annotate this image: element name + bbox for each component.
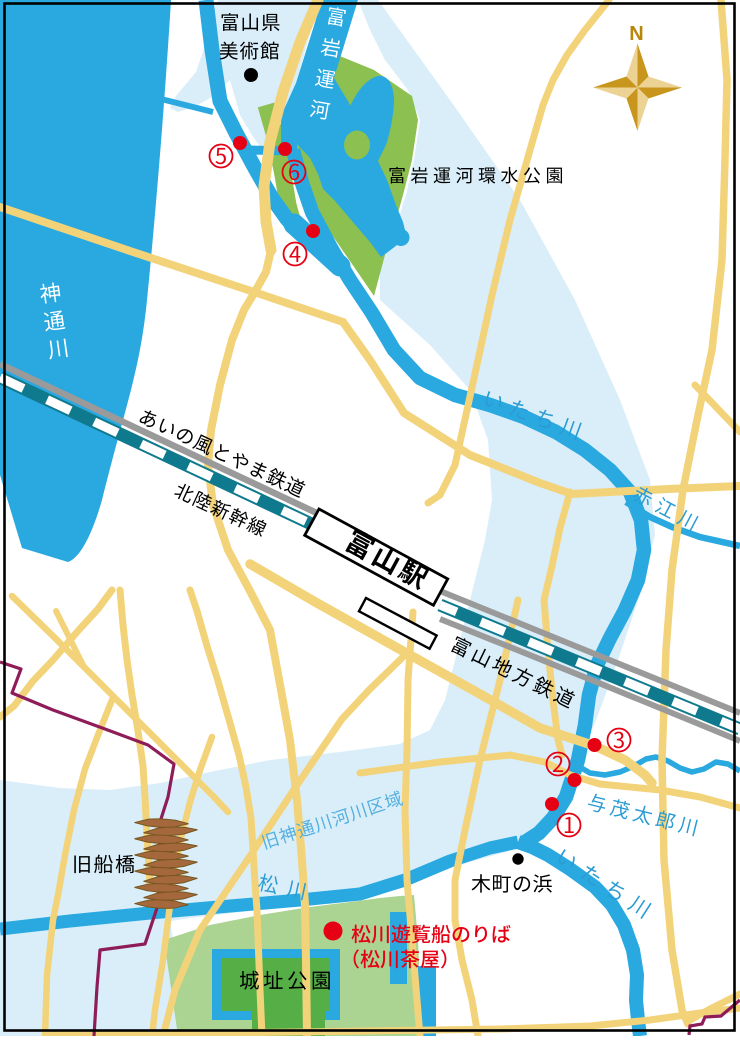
svg-text:N: N xyxy=(629,23,643,45)
